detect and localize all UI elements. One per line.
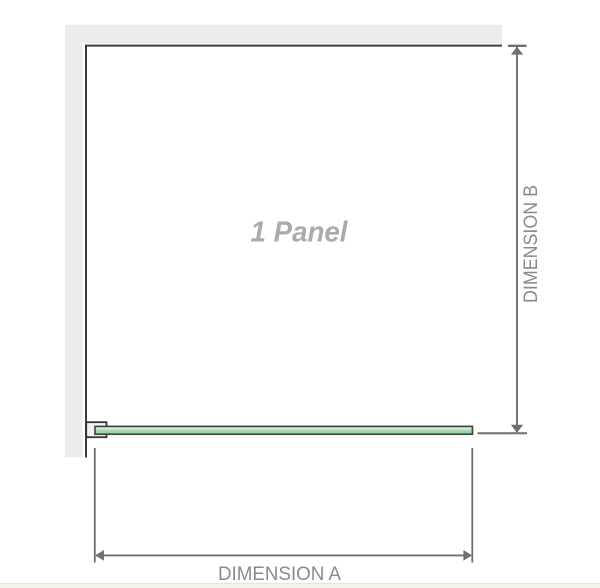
svg-text:DIMENSION A: DIMENSION A xyxy=(218,563,341,585)
svg-text:1 Panel: 1 Panel xyxy=(251,217,349,249)
svg-text:DIMENSION B: DIMENSION B xyxy=(520,185,542,303)
